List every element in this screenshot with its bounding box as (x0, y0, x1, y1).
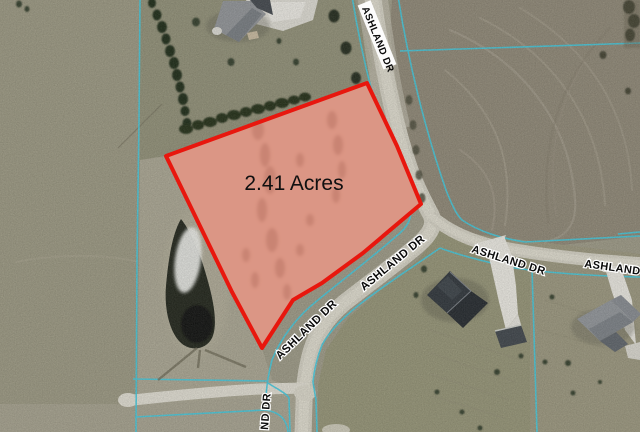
aerial-map: ASHLAND DR ASHLAND DR ASHLAND DR ASHLAND… (0, 0, 640, 432)
aerial-map-canvas: ASHLAND DR ASHLAND DR ASHLAND DR ASHLAND… (0, 0, 640, 432)
parcel-area-label: 2.41 Acres (244, 172, 343, 195)
road-label-south-partial: ND DR (259, 393, 274, 431)
